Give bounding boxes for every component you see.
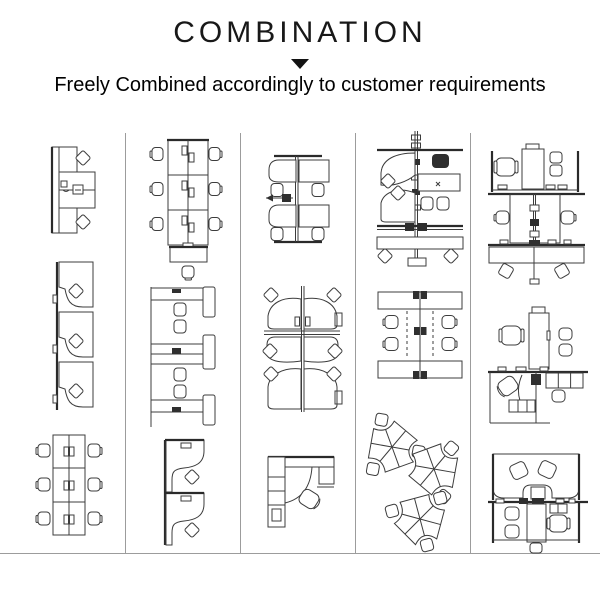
plan-column-5 (471, 133, 600, 553)
page: COMBINATION Freely Combined accordingly … (0, 0, 600, 600)
plan-6-person-bench-cluster (36, 433, 102, 537)
plan-3-person-inline-l-desks-on-panel (50, 261, 96, 411)
plan-2-person-stacked-l-desks (156, 439, 211, 545)
plan-4-person-spine-cluster (263, 153, 339, 245)
plan-column-1 (0, 133, 126, 553)
plan-executive-desk-with-guest-chairs-and-storage (488, 305, 588, 427)
plan-column-2 (126, 133, 241, 553)
plan-2-person-face-to-face-desk-with-panel (46, 143, 98, 233)
plan-6-person-curved-desk-cluster (261, 283, 343, 415)
plan-4-person-inline-desks-with-side-cabinets (150, 287, 220, 427)
plan-column-4 (356, 133, 471, 553)
plan-4-person-double-row-with-spine (377, 291, 463, 379)
plan-6-person-manager-combination (488, 135, 588, 287)
floorplan-grid (0, 133, 600, 554)
plan-single-l-desk-with-storage (267, 455, 339, 535)
plan-column-3 (241, 133, 356, 553)
page-title: COMBINATION (0, 16, 600, 50)
plan-6-person-bench-with-spine-and-end-table (150, 138, 222, 283)
page-subtitle: Freely Combined accordingly to customer … (0, 74, 600, 97)
plan-3-pod-120-degree-cluster (358, 413, 470, 553)
plan-6-person-mixed-spine-cluster (376, 129, 464, 267)
triangle-down-icon (291, 59, 309, 69)
plan-4-person-u-desk-manager-combination (488, 448, 588, 554)
